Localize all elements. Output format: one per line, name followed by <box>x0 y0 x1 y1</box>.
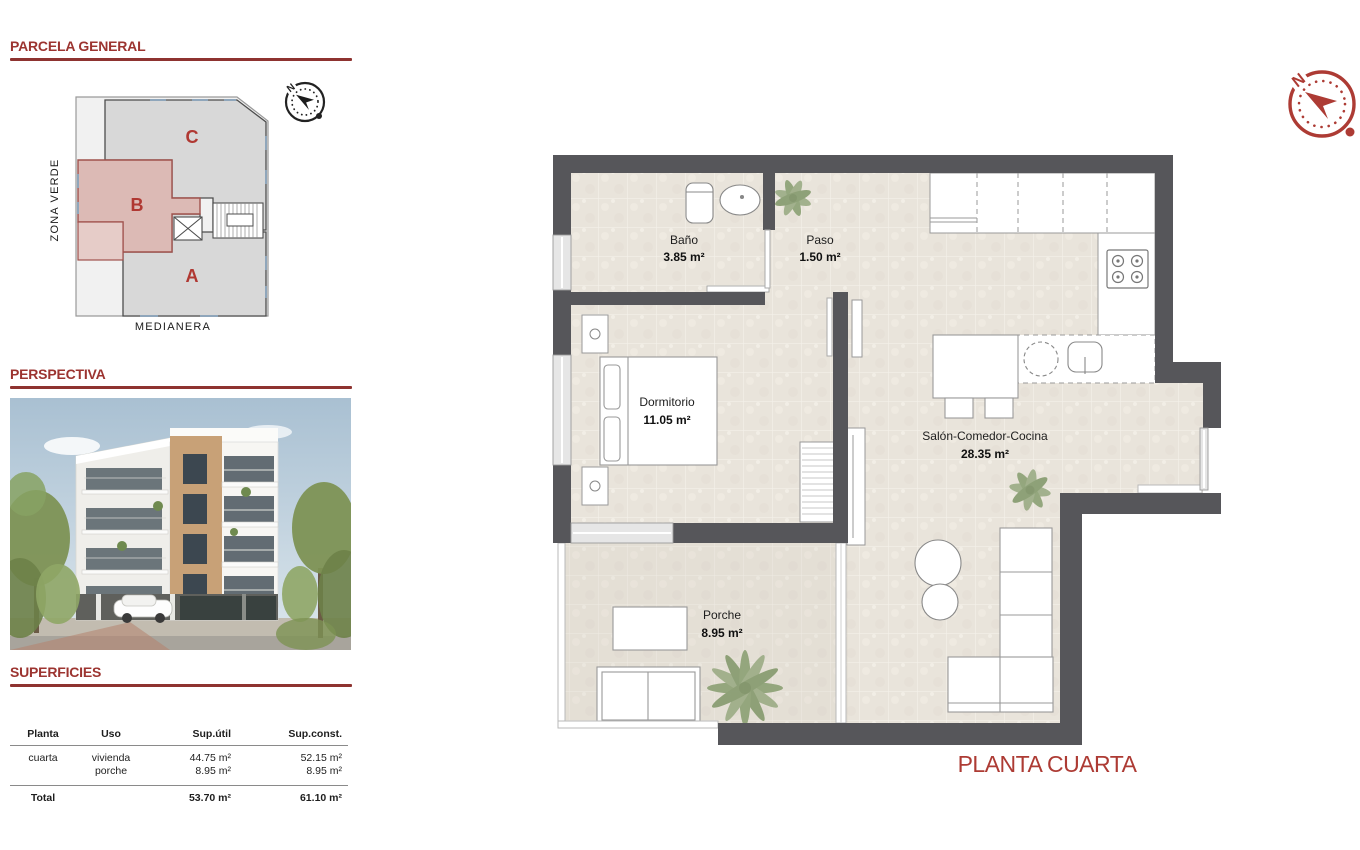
superficies-section-header: SUPERFICIES <box>10 664 352 687</box>
cell-uso: viviendaporche <box>76 752 146 778</box>
porch-table <box>613 607 687 650</box>
room-area-dormitorio: 11.05 m² <box>643 413 690 427</box>
cell-sup-util: 44.75 m²8.95 m² <box>146 752 231 778</box>
elevator-icon <box>174 217 202 240</box>
cell-sup-const: 52.15 m²8.95 m² <box>231 752 348 778</box>
surfaces-row-total: Total 53.70 m² 61.10 m² <box>10 785 348 805</box>
hob-icon <box>1107 250 1148 288</box>
parcela-section-header: PARCELA GENERAL <box>10 38 352 61</box>
room-area-salon: 28.35 m² <box>961 447 1009 461</box>
parcela-heading: PARCELA GENERAL <box>10 38 352 54</box>
zona-verde-label: ZONA VERDE <box>49 159 61 242</box>
compass-arrow <box>1305 92 1337 119</box>
room-label-dormitorio: Dormitorio <box>639 395 695 409</box>
zone-c-label: C <box>186 127 199 147</box>
cell-planta: cuarta <box>10 752 76 778</box>
cell-total-label: Total <box>10 792 76 805</box>
zone-a-label: A <box>186 266 199 286</box>
site-compass-n: N <box>285 82 297 95</box>
surfaces-table: Planta Uso Sup.útil Sup.const. cuarta vi… <box>10 728 348 805</box>
medianera-label: MEDIANERA <box>135 321 211 333</box>
bed <box>600 357 717 465</box>
porch-lounger <box>597 667 700 725</box>
room-area-bano: 3.85 m² <box>663 250 704 264</box>
site-compass-icon: N <box>285 82 324 121</box>
perspectiva-image <box>10 398 351 650</box>
floor-plan: Baño 3.85 m² Paso 1.50 m² Dormitorio 11.… <box>540 140 1260 790</box>
room-label-bano: Baño <box>670 233 698 247</box>
room-area-paso: 1.50 m² <box>799 250 840 264</box>
cell-total-util: 53.70 m² <box>146 792 231 805</box>
superficies-heading: SUPERFICIES <box>10 664 352 680</box>
room-label-paso: Paso <box>806 233 834 247</box>
surfaces-table-header: Planta Uso Sup.útil Sup.const. <box>10 728 348 746</box>
compass-icon: N <box>1282 52 1360 148</box>
site-plan: C B A ZONA VERDE MEDIANERA N <box>0 70 360 350</box>
perspectiva-rule <box>10 386 352 389</box>
room-label-salon: Salón-Comedor-Cocina <box>922 429 1048 443</box>
room-label-porche: Porche <box>703 608 741 622</box>
room-area-porche: 8.95 m² <box>701 626 742 640</box>
washbasin-icon <box>720 185 760 215</box>
parcela-rule <box>10 58 352 61</box>
toilet-icon <box>686 183 713 223</box>
plan-sheet: PARCELA GENERAL <box>0 0 1360 850</box>
col-sup-util: Sup.útil <box>146 728 231 741</box>
stairs-icon <box>213 203 263 238</box>
col-uso: Uso <box>76 728 146 741</box>
cell-total-const: 61.10 m² <box>231 792 348 805</box>
col-sup-const: Sup.const. <box>231 728 348 741</box>
perspectiva-heading: PERSPECTIVA <box>10 366 352 382</box>
superficies-rule <box>10 684 352 687</box>
perspectiva-section-header: PERSPECTIVA <box>10 366 352 389</box>
zone-b-label: B <box>131 195 144 215</box>
floor-title: PLANTA CUARTA <box>958 751 1138 777</box>
compass-n: N <box>1289 71 1309 92</box>
surfaces-row-cuarta: cuarta viviendaporche 44.75 m²8.95 m² 52… <box>10 746 348 785</box>
building-rendering <box>76 428 278 623</box>
col-planta: Planta <box>10 728 76 741</box>
vanity-shelf <box>707 286 769 292</box>
